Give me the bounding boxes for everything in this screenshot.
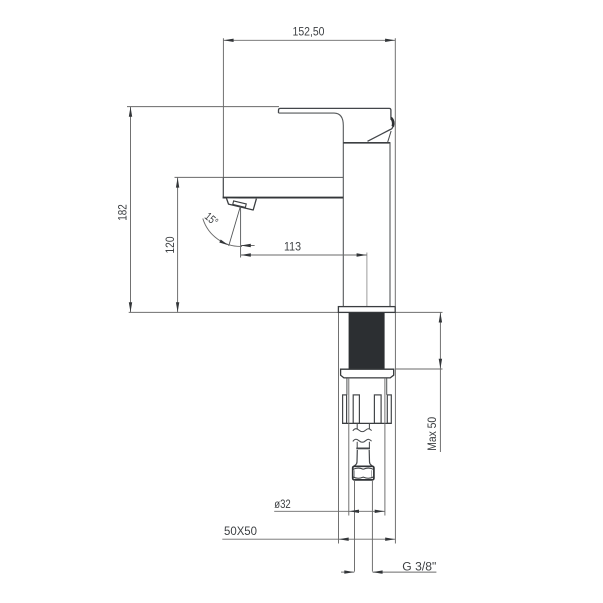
svg-text:113: 113 (284, 242, 301, 254)
svg-text:120: 120 (165, 237, 177, 254)
svg-text:ø32: ø32 (274, 499, 291, 511)
svg-text:G 3/8": G 3/8" (402, 561, 436, 573)
svg-text:50X50: 50X50 (224, 526, 257, 538)
svg-text:Max 50: Max 50 (427, 417, 439, 451)
svg-text:152,50: 152,50 (293, 27, 325, 39)
svg-text:182: 182 (118, 204, 130, 221)
